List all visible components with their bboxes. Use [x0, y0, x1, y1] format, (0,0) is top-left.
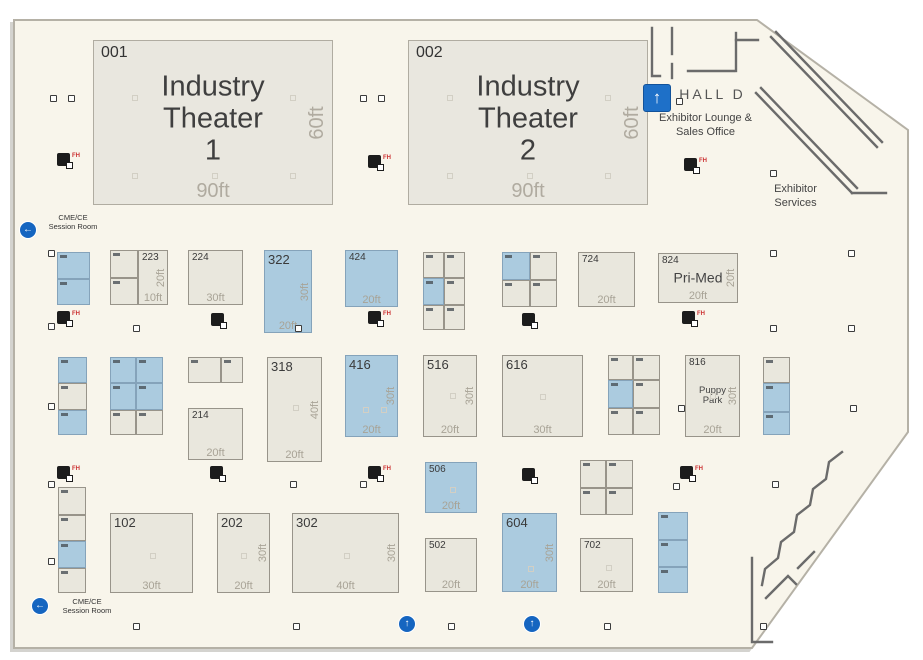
floor-dot — [447, 173, 453, 179]
floor-dot — [344, 553, 350, 559]
booth-cell[interactable] — [444, 252, 465, 278]
column-marker — [678, 405, 685, 412]
floor-dot — [528, 566, 534, 572]
booth-cell[interactable] — [110, 357, 136, 383]
booth-416[interactable]: 41620ft30ft — [345, 355, 398, 437]
booth-label: 302 — [296, 515, 318, 530]
theater-name: Industry Theater 1 — [94, 70, 332, 167]
depth-dimension: 30ft — [386, 544, 398, 562]
column-marker — [772, 481, 779, 488]
booth-cell[interactable] — [633, 408, 660, 435]
floor-dot — [605, 95, 611, 101]
booth-label: 604 — [506, 515, 528, 530]
booth-label: 702 — [584, 540, 601, 551]
width-dimension: 30ft — [111, 580, 192, 592]
column-marker — [848, 325, 855, 332]
exhibit-hall-floor-plan: 001 Industry Theater 1 90ft 60ft 002 Ind… — [0, 0, 923, 660]
column-marker — [360, 95, 367, 102]
floor-dot — [710, 393, 716, 399]
depth-dimension: 30ft — [727, 387, 739, 405]
booth-label: 224 — [192, 252, 209, 263]
floor-dot — [241, 553, 247, 559]
booth-cell[interactable] — [608, 380, 633, 408]
column-marker — [378, 95, 385, 102]
booth-cell[interactable] — [580, 460, 606, 488]
depth-dimension: 30ft — [299, 282, 311, 300]
nav-arrow-left-icon[interactable]: ← — [32, 598, 48, 614]
booth-cell[interactable] — [58, 541, 86, 568]
booth-cell[interactable] — [58, 515, 86, 541]
fire-hose-label: FH — [383, 155, 391, 161]
floor-dot — [293, 405, 299, 411]
booth-cell[interactable] — [763, 383, 790, 412]
fire-hose-icon — [522, 468, 535, 481]
booth-number: 001 — [101, 44, 128, 62]
column-marker — [220, 322, 227, 329]
nav-arrow-up-icon[interactable]: ↑ — [643, 84, 671, 112]
theater-name: Industry Theater 2 — [409, 70, 647, 167]
booth-label: 516 — [427, 357, 449, 372]
width-dimension: 20ft — [579, 294, 634, 306]
column-marker — [50, 95, 57, 102]
column-marker — [760, 623, 767, 630]
booth-cell[interactable] — [110, 410, 136, 435]
exhibitor-services-label: Exhibitor Services — [753, 183, 838, 211]
column-marker — [377, 475, 384, 482]
booth-cell[interactable] — [57, 279, 90, 305]
booth-cell[interactable] — [58, 487, 86, 515]
depth-dimension: 30ft — [544, 543, 556, 561]
booth-223[interactable]: 22310ft20ft — [138, 250, 168, 305]
width-dimension: 20ft — [346, 294, 397, 306]
column-marker — [66, 162, 73, 169]
booth-cell[interactable] — [633, 380, 660, 408]
booth-label: 223 — [142, 252, 159, 263]
booth-label: 102 — [114, 515, 136, 530]
floor-dot — [132, 95, 138, 101]
column-marker — [133, 325, 140, 332]
booth-cell[interactable] — [502, 280, 530, 307]
booth-cell[interactable] — [633, 355, 660, 380]
depth-dimension: 20ft — [155, 268, 167, 286]
booth-cell[interactable] — [110, 383, 136, 410]
floor-dot — [381, 407, 387, 413]
depth-dimension: 30ft — [385, 387, 397, 405]
floor-dot — [605, 173, 611, 179]
column-marker — [48, 481, 55, 488]
booth-cell[interactable] — [188, 357, 221, 383]
width-dimension: 90ft — [409, 180, 647, 203]
width-dimension: 20ft — [426, 500, 476, 512]
booth-824[interactable]: 824Pri-Med20ft20ft — [658, 253, 738, 303]
fire-hose-icon — [522, 313, 535, 326]
width-dimension: 20ft — [218, 580, 269, 592]
width-dimension: 20ft — [581, 579, 632, 591]
column-marker — [133, 623, 140, 630]
column-marker — [676, 98, 683, 105]
fire-hose-icon: FH — [368, 466, 381, 479]
fire-hose-icon — [211, 313, 224, 326]
booth-cell[interactable] — [110, 250, 138, 278]
column-marker — [448, 623, 455, 630]
column-marker — [48, 558, 55, 565]
column-marker — [770, 250, 777, 257]
width-dimension: 30ft — [503, 424, 582, 436]
booth-cell[interactable] — [763, 357, 790, 383]
fire-hose-icon: FH — [680, 466, 693, 479]
column-marker — [66, 475, 73, 482]
column-marker — [48, 403, 55, 410]
floor-dot — [212, 173, 218, 179]
depth-dimension: 20ft — [725, 269, 737, 287]
booth-502[interactable]: 50220ft — [425, 538, 477, 592]
column-marker — [531, 322, 538, 329]
floor-dot — [132, 173, 138, 179]
column-marker — [68, 95, 75, 102]
booth-cell[interactable] — [58, 357, 87, 383]
fire-hose-label: FH — [72, 466, 80, 472]
column-marker — [66, 320, 73, 327]
column-marker — [693, 167, 700, 174]
booth-number: 002 — [416, 44, 443, 62]
booth-cell[interactable] — [423, 278, 444, 305]
booth-322[interactable]: 32220ft30ft — [264, 250, 312, 333]
booth-214[interactable]: 21420ft — [188, 408, 243, 460]
column-marker — [770, 170, 777, 177]
booth-cell[interactable] — [221, 357, 243, 383]
fire-hose-icon: FH — [57, 311, 70, 324]
booth-cell[interactable] — [658, 512, 688, 540]
booth-cell[interactable] — [423, 305, 444, 330]
column-marker — [673, 483, 680, 490]
fire-hose-icon: FH — [57, 466, 70, 479]
booth-cell[interactable] — [580, 488, 606, 515]
column-marker — [293, 623, 300, 630]
booth-cell[interactable] — [423, 252, 444, 278]
width-dimension: 20ft — [346, 424, 397, 436]
depth-dimension: 60ft — [306, 106, 329, 139]
floor-dot — [150, 553, 156, 559]
booth-cell[interactable] — [444, 278, 465, 305]
fire-hose-icon: FH — [57, 153, 70, 166]
width-dimension: 90ft — [94, 180, 332, 203]
floor-dot — [363, 407, 369, 413]
fire-hose-label: FH — [383, 466, 391, 472]
column-marker — [360, 481, 367, 488]
column-marker — [770, 325, 777, 332]
depth-dimension: 40ft — [309, 400, 321, 418]
fire-hose-label: FH — [697, 311, 705, 317]
booth-label: 424 — [349, 252, 366, 263]
booth-cell[interactable] — [57, 252, 90, 279]
floor-dot — [447, 95, 453, 101]
booth-label: 616 — [506, 357, 528, 372]
width-dimension: 20ft — [426, 579, 476, 591]
booth-label: 724 — [582, 254, 599, 265]
column-marker — [604, 623, 611, 630]
width-dimension: 30ft — [189, 292, 242, 304]
column-marker — [531, 477, 538, 484]
booth-label: 318 — [271, 359, 293, 374]
booth-cell[interactable] — [658, 567, 688, 593]
width-dimension: 20ft — [424, 424, 476, 436]
width-dimension: 20ft — [265, 320, 311, 332]
booth-cell[interactable] — [502, 252, 530, 280]
booth-cell[interactable] — [608, 355, 633, 380]
booth-cell[interactable] — [136, 410, 163, 435]
width-dimension: 20ft — [268, 449, 321, 461]
booth-cell[interactable] — [444, 305, 465, 330]
booth-724[interactable]: 72420ft — [578, 252, 635, 307]
fire-hose-label: FH — [699, 158, 707, 164]
session-room-label-bottom: CME/CE Session Room — [52, 597, 122, 615]
booth-cell[interactable] — [608, 408, 633, 435]
booth-label: 506 — [429, 464, 446, 475]
booth-cell[interactable] — [136, 357, 163, 383]
booth-cell[interactable] — [58, 383, 87, 410]
column-marker — [848, 250, 855, 257]
fire-hose-icon: FH — [368, 311, 381, 324]
booth-cell[interactable] — [58, 410, 87, 435]
width-dimension: 40ft — [293, 580, 398, 592]
fire-hose-icon — [210, 466, 223, 479]
floor-dot — [290, 95, 296, 101]
floor-dot — [540, 394, 546, 400]
column-marker — [850, 405, 857, 412]
width-dimension: 10ft — [139, 292, 167, 304]
column-marker — [691, 320, 698, 327]
booth-cell[interactable] — [530, 280, 557, 307]
booth-cell[interactable] — [136, 383, 163, 410]
booth-label: 416 — [349, 357, 371, 372]
floor-dot — [450, 393, 456, 399]
booth-label: 816 — [689, 357, 706, 368]
session-room-label-top: CME/CE Session Room — [38, 213, 108, 231]
fire-hose-label: FH — [383, 311, 391, 317]
width-dimension: 20ft — [686, 424, 739, 436]
fire-hose-icon: FH — [368, 155, 381, 168]
column-marker — [377, 320, 384, 327]
width-dimension: 20ft — [189, 447, 242, 459]
booth-604[interactable]: 60420ft30ft — [502, 513, 557, 592]
booth-cell[interactable] — [530, 252, 557, 280]
floor-dot — [527, 173, 533, 179]
width-dimension: 20ft — [659, 290, 737, 302]
nav-arrow-up-icon[interactable]: ↑ — [524, 616, 540, 632]
booth-224[interactable]: 22430ft — [188, 250, 243, 305]
booth-label: 502 — [429, 540, 446, 551]
depth-dimension: 30ft — [257, 544, 269, 562]
booth-label: 214 — [192, 410, 209, 421]
fire-hose-label: FH — [72, 153, 80, 159]
booth-cell[interactable] — [110, 278, 138, 305]
nav-arrow-up-icon[interactable]: ↑ — [399, 616, 415, 632]
booth-cell[interactable] — [58, 568, 86, 593]
booth-cell[interactable] — [763, 412, 790, 435]
booth-cell[interactable] — [606, 488, 633, 515]
column-marker — [48, 323, 55, 330]
fire-hose-icon: FH — [684, 158, 697, 171]
depth-dimension: 30ft — [464, 387, 476, 405]
column-marker — [290, 481, 297, 488]
column-marker — [295, 325, 302, 332]
nav-arrow-left-icon[interactable]: ← — [20, 222, 36, 238]
booth-002-industry-theater-2[interactable]: 002 Industry Theater 2 90ft 60ft — [408, 40, 648, 205]
floor-dot — [290, 173, 296, 179]
fire-hose-label: FH — [72, 311, 80, 317]
booth-cell[interactable] — [606, 460, 633, 488]
booth-label: 824 — [662, 255, 679, 266]
booth-label: 202 — [221, 515, 243, 530]
booth-424[interactable]: 42420ft — [345, 250, 398, 307]
booth-label: 322 — [268, 252, 290, 267]
floor-dot — [450, 487, 456, 493]
booth-cell[interactable] — [658, 540, 688, 567]
depth-dimension: 60ft — [621, 106, 644, 139]
floor-dot — [606, 565, 612, 571]
exhibitor-lounge-label: Exhibitor Lounge & Sales Office — [643, 112, 768, 140]
booth-001-industry-theater-1[interactable]: 001 Industry Theater 1 90ft 60ft — [93, 40, 333, 205]
width-dimension: 20ft — [503, 579, 556, 591]
column-marker — [689, 475, 696, 482]
fire-hose-label: FH — [695, 466, 703, 472]
column-marker — [219, 475, 226, 482]
column-marker — [377, 164, 384, 171]
fire-hose-icon: FH — [682, 311, 695, 324]
column-marker — [48, 250, 55, 257]
